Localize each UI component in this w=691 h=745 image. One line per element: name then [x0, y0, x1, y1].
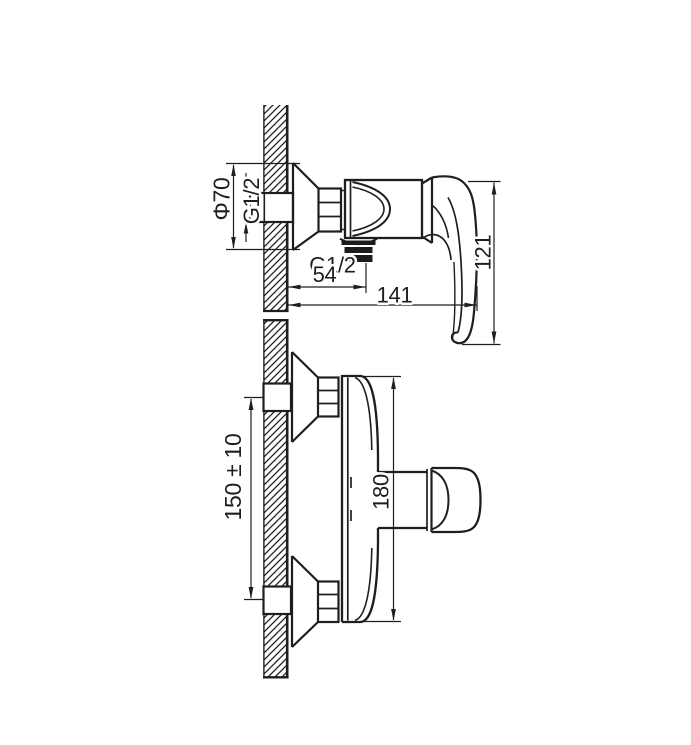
- hex-nut-upper: [318, 378, 339, 417]
- dim-121-label: 121: [471, 235, 496, 271]
- cap-outline: [432, 468, 481, 532]
- dim-150-label: 150 ± 10: [220, 434, 246, 521]
- escutcheon-lower: [292, 556, 318, 647]
- dim-180-label: 180: [369, 474, 394, 510]
- front-view: 150 ± 10 180: [220, 352, 481, 647]
- valve-body: [345, 180, 422, 238]
- dim-150: 150 ± 10: [220, 398, 263, 600]
- supply-block-lower: [264, 587, 292, 615]
- escutcheon: [293, 163, 319, 250]
- hex-nut: [319, 189, 346, 232]
- escutcheon-upper: [292, 352, 318, 442]
- side-view: Φ70 G1/2 G1/2 54 141: [209, 163, 501, 345]
- technical-drawing-page: Φ70 G1/2 G1/2 54 141: [0, 0, 691, 745]
- dim-141-label: 141: [377, 283, 413, 308]
- cap-dome: [432, 471, 449, 530]
- dim-54-label: 54: [313, 262, 337, 287]
- wall-hatch-lower: [264, 320, 288, 678]
- handle-base: [422, 178, 432, 244]
- dim-inlet-thread-label: G1/2: [239, 178, 264, 225]
- dim-phi70-label: Φ70: [209, 177, 235, 220]
- hex-nut-lower: [318, 582, 339, 623]
- dim-121: 121: [462, 182, 501, 345]
- dim-inlet-thread: G1/2: [239, 173, 264, 242]
- mixer-drawing-svg: Φ70 G1/2 G1/2 54 141: [0, 0, 691, 745]
- supply-block-upper: [264, 384, 292, 412]
- lever-handle: [422, 176, 477, 343]
